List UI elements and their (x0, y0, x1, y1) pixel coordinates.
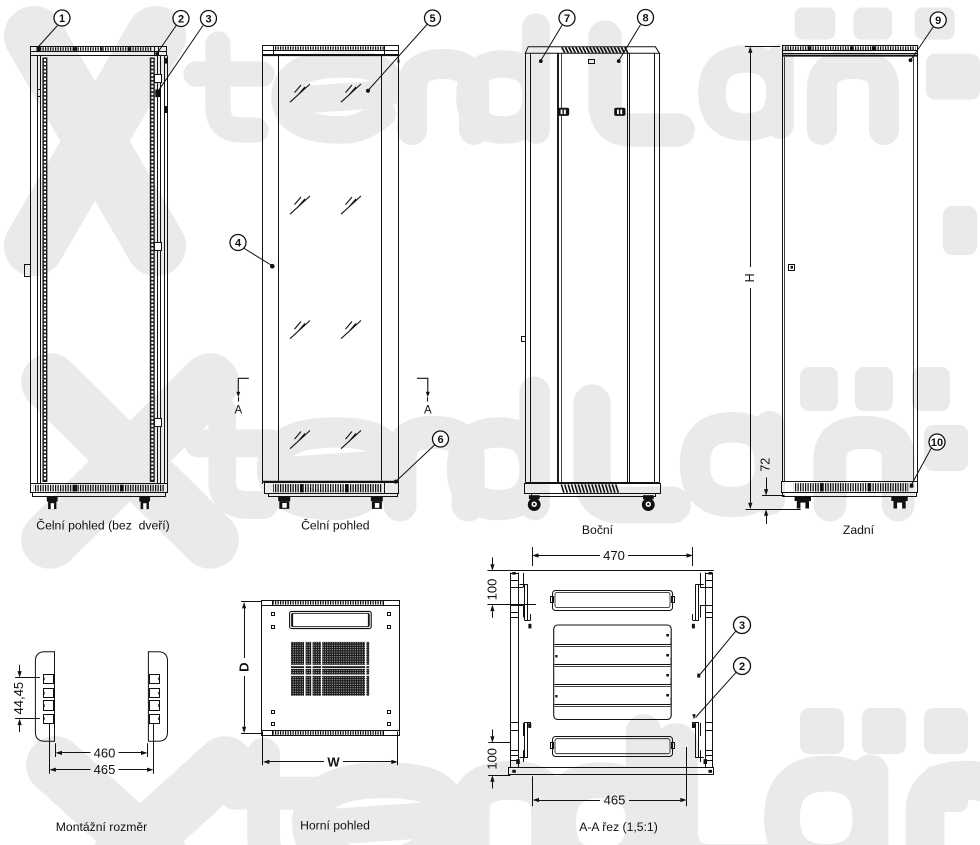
svg-text:4: 4 (235, 237, 242, 249)
svg-text:72: 72 (758, 458, 772, 472)
svg-text:Montážní rozměr: Montážní rozměr (56, 820, 147, 834)
svg-text:Zadní: Zadní (843, 523, 875, 537)
svg-text:460: 460 (94, 745, 116, 760)
svg-text:A-A řez (1,5:1): A-A řez (1,5:1) (579, 820, 658, 834)
svg-text:465: 465 (94, 762, 116, 777)
svg-text:10: 10 (931, 437, 943, 449)
svg-text:Horní pohled: Horní pohled (300, 819, 370, 833)
svg-text:7: 7 (564, 13, 570, 25)
svg-text:9: 9 (935, 15, 941, 27)
svg-text:A: A (424, 405, 432, 417)
svg-text:A: A (234, 405, 242, 417)
svg-text:W: W (327, 754, 340, 769)
svg-text:2: 2 (178, 13, 184, 25)
svg-text:Boční: Boční (582, 523, 614, 537)
svg-text:D: D (236, 663, 251, 672)
svg-text:H: H (743, 273, 757, 282)
svg-text:44,45: 44,45 (11, 682, 26, 715)
svg-text:1: 1 (59, 13, 65, 25)
svg-text:100: 100 (484, 748, 499, 770)
svg-text:470: 470 (603, 548, 625, 563)
svg-text:8: 8 (642, 12, 648, 24)
svg-text:6: 6 (437, 434, 443, 446)
svg-text:3: 3 (205, 13, 211, 25)
svg-text:465: 465 (604, 792, 626, 807)
svg-text:Čelní pohled: Čelní pohled (301, 518, 369, 533)
svg-text:100: 100 (484, 579, 499, 601)
svg-text:5: 5 (429, 13, 435, 25)
svg-text:2: 2 (739, 661, 745, 673)
svg-text:3: 3 (739, 620, 745, 632)
svg-text:Čelní pohled (bez dveří): Čelní pohled (bez dveří) (36, 518, 169, 533)
